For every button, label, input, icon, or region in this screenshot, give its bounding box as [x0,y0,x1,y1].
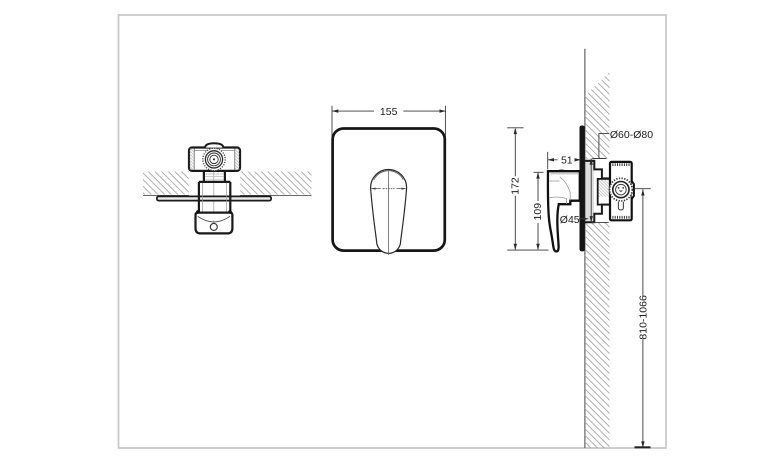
svg-text:Ø60-Ø80: Ø60-Ø80 [610,129,653,141]
svg-text:172: 172 [510,177,522,195]
svg-text:Ø45: Ø45 [560,214,580,226]
svg-text:51: 51 [561,155,573,167]
svg-text:810-1066: 810-1066 [638,295,650,340]
svg-text:109: 109 [532,203,544,221]
svg-text:155: 155 [380,106,398,118]
